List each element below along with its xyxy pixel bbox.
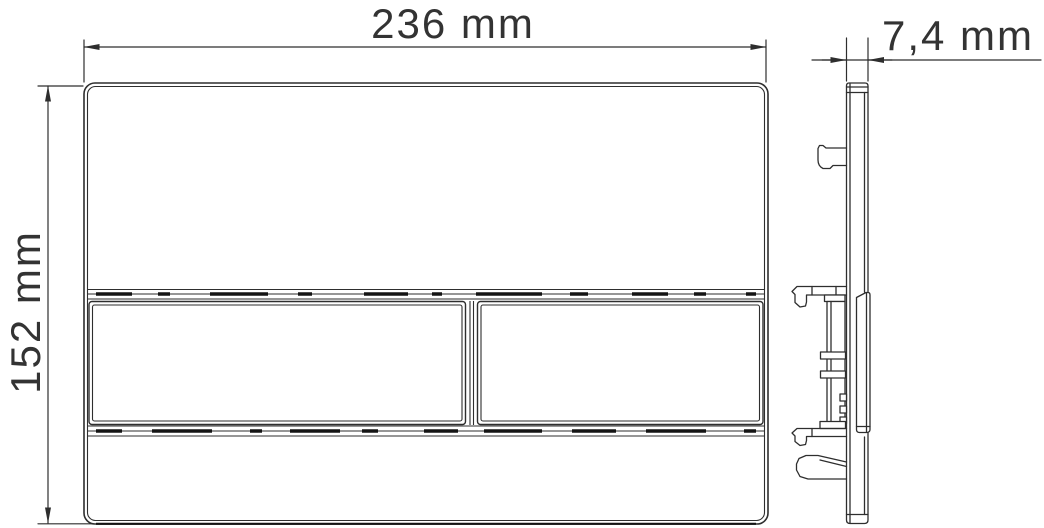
mechanism-notch-2 [840,406,847,413]
dimension-thickness-label: 7,4 mm [882,12,1034,59]
technical-drawing: 236 mm 152 mm 7,4 mm [0,0,1044,528]
mechanism-notch-1 [840,394,847,401]
bottom-mounting-arm [792,429,847,446]
left-flush-button [89,302,466,425]
front-view [84,83,768,524]
dimension-height-label: 152 mm [2,230,49,394]
side-button-profile [857,293,871,433]
upper-clip-hook [818,146,847,169]
top-arm-flange [825,295,846,302]
bottom-arm-flange [820,422,846,429]
mechanism-pin-lower [821,371,846,378]
side-view [792,83,870,524]
mechanism-pin-upper [821,352,846,359]
dimension-width-label: 236 mm [371,0,535,47]
drawing-canvas: 236 mm 152 mm 7,4 mm [0,0,1044,528]
lower-clip-hook [797,456,847,480]
right-flush-button [478,302,764,425]
